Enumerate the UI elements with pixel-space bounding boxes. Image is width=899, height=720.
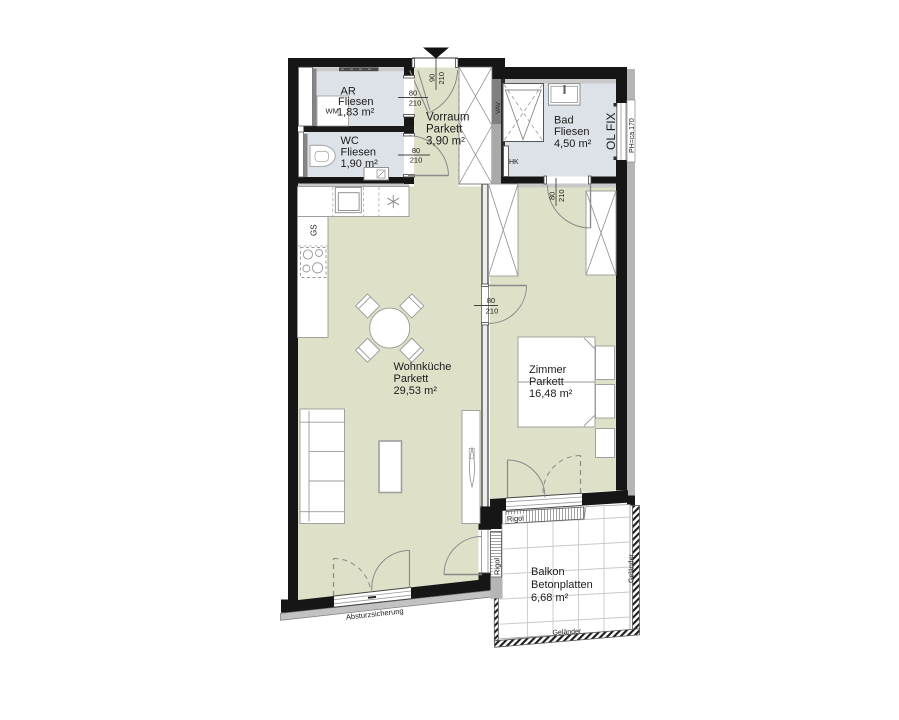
svg-text:Bad: Bad xyxy=(554,115,574,127)
svg-text:80: 80 xyxy=(548,192,557,200)
svg-text:Balkon: Balkon xyxy=(531,566,565,578)
svg-text:Vorraum: Vorraum xyxy=(426,112,469,124)
svg-text:Geländer: Geländer xyxy=(629,554,636,583)
svg-text:Parkett: Parkett xyxy=(426,124,463,136)
svg-text:6,68 m²: 6,68 m² xyxy=(531,592,569,604)
svg-text:29,53 m²: 29,53 m² xyxy=(394,385,438,397)
svg-text:210: 210 xyxy=(410,156,423,165)
svg-text:80: 80 xyxy=(409,89,417,98)
svg-text:Betonplatten: Betonplatten xyxy=(531,579,593,591)
svg-text:Parkett: Parkett xyxy=(394,373,429,385)
svg-text:16,48 m²: 16,48 m² xyxy=(529,388,573,400)
svg-text:1,83 m²: 1,83 m² xyxy=(337,107,375,119)
svg-text:3,90 m²: 3,90 m² xyxy=(426,136,465,148)
svg-text:210: 210 xyxy=(409,99,422,108)
svg-text:GS: GS xyxy=(310,224,319,236)
svg-text:HK: HK xyxy=(509,159,519,166)
svg-text:OL FIX: OL FIX xyxy=(604,112,618,150)
svg-text:90: 90 xyxy=(428,74,437,82)
svg-text:Fliesen: Fliesen xyxy=(341,147,376,159)
svg-text:Rigol: Rigol xyxy=(507,514,525,524)
svg-text:Parkett: Parkett xyxy=(529,376,564,388)
svg-text:210: 210 xyxy=(437,72,446,85)
svg-text:210: 210 xyxy=(486,307,499,316)
svg-text:WC: WC xyxy=(341,135,359,147)
svg-text:1,90 m²: 1,90 m² xyxy=(341,158,379,170)
svg-text:VAV: VAV xyxy=(495,101,502,114)
svg-text:Rigol: Rigol xyxy=(493,558,502,575)
svg-text:80: 80 xyxy=(412,146,420,155)
svg-text:4,50 m²: 4,50 m² xyxy=(554,138,592,150)
svg-text:Wohnküche: Wohnküche xyxy=(394,361,452,373)
svg-text:210: 210 xyxy=(557,189,566,202)
svg-text:Fliesen: Fliesen xyxy=(554,126,589,138)
svg-text:Zimmer: Zimmer xyxy=(529,364,567,376)
svg-text:80: 80 xyxy=(487,296,495,305)
svg-text:PH=ca.170: PH=ca.170 xyxy=(629,118,636,153)
